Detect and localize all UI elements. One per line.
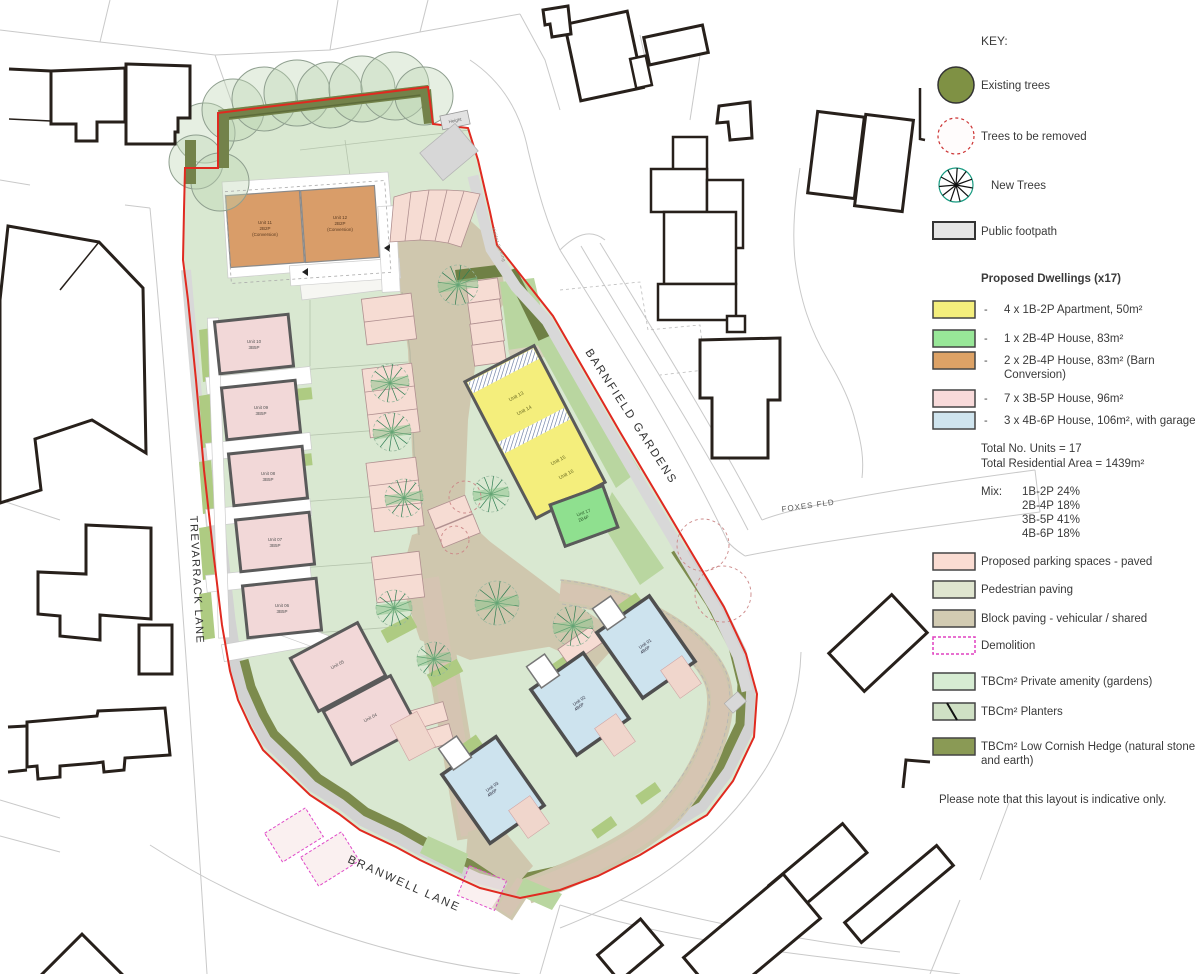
svg-text:TBCm² Private amenity (gardens: TBCm² Private amenity (gardens) <box>981 676 1152 688</box>
svg-text:Unit 07: Unit 07 <box>268 537 283 542</box>
svg-text:-: - <box>984 304 988 316</box>
svg-text:(Conversion): (Conversion) <box>252 232 278 237</box>
svg-text:2B2P: 2B2P <box>259 226 270 231</box>
svg-text:Unit 12: Unit 12 <box>333 215 348 220</box>
svg-text:4B-6P 18%: 4B-6P 18% <box>1022 528 1080 540</box>
svg-text:Please note that this layout i: Please note that this layout is indicati… <box>939 794 1166 806</box>
svg-text:Trees to be removed: Trees to be removed <box>981 131 1087 143</box>
svg-text:-: - <box>984 355 988 367</box>
svg-text:3 x 4B-6P House, 106m², with g: 3 x 4B-6P House, 106m², with garage <box>1004 415 1196 427</box>
svg-text:2B2P: 2B2P <box>334 221 345 226</box>
svg-text:Pedestrian paving: Pedestrian paving <box>981 584 1073 596</box>
svg-text:Unit 08: Unit 08 <box>261 471 276 476</box>
svg-text:3B5P: 3B5P <box>248 345 259 350</box>
svg-text:Proposed Dwellings (x17): Proposed Dwellings (x17) <box>981 273 1121 285</box>
svg-text:Block paving - vehicular / sha: Block paving - vehicular / shared <box>981 613 1147 625</box>
svg-text:Proposed parking spaces - pave: Proposed parking spaces - paved <box>981 556 1152 568</box>
svg-text:(Conversion): (Conversion) <box>327 227 353 232</box>
svg-text:3B5P: 3B5P <box>276 609 287 614</box>
svg-text:KEY:: KEY: <box>981 34 1008 48</box>
svg-text:New Trees: New Trees <box>991 180 1046 192</box>
svg-text:-: - <box>984 333 988 345</box>
svg-text:3B-5P 41%: 3B-5P 41% <box>1022 514 1080 526</box>
svg-text:2 x 2B-4P House, 83m² (Barn: 2 x 2B-4P House, 83m² (Barn <box>1004 355 1155 367</box>
svg-text:Total Residential Area = 1439m: Total Residential Area = 1439m² <box>981 458 1145 470</box>
svg-text:Unit 09: Unit 09 <box>254 405 269 410</box>
svg-text:Unit 06: Unit 06 <box>275 603 290 608</box>
svg-text:Conversion): Conversion) <box>1004 369 1066 381</box>
svg-text:TBCm² Planters: TBCm² Planters <box>981 706 1063 718</box>
svg-text:2B-4P 18%: 2B-4P 18% <box>1022 500 1080 512</box>
svg-text:Mix:: Mix: <box>981 486 1002 498</box>
svg-text:4 x 1B-2P Apartment, 50m²: 4 x 1B-2P Apartment, 50m² <box>1004 304 1143 316</box>
svg-text:Unit 11: Unit 11 <box>258 220 272 225</box>
svg-text:3B5P: 3B5P <box>262 477 273 482</box>
svg-text:Total No. Units = 17: Total No. Units = 17 <box>981 443 1082 455</box>
svg-text:Demolition: Demolition <box>981 640 1035 652</box>
svg-text:7 x 3B-5P House, 96m²: 7 x 3B-5P House, 96m² <box>1004 393 1123 405</box>
svg-text:TBCm² Low Cornish Hedge (natur: TBCm² Low Cornish Hedge (natural stone <box>981 741 1195 753</box>
svg-text:-: - <box>984 415 988 427</box>
svg-text:Existing trees: Existing trees <box>981 80 1050 92</box>
svg-text:3B5P: 3B5P <box>269 543 280 548</box>
svg-text:and earth): and earth) <box>981 755 1034 767</box>
svg-text:Public footpath: Public footpath <box>981 226 1057 238</box>
svg-text:1 x 2B-4P House, 83m²: 1 x 2B-4P House, 83m² <box>1004 333 1123 345</box>
svg-text:1B-2P 24%: 1B-2P 24% <box>1022 486 1080 498</box>
svg-text:Unit 10: Unit 10 <box>247 339 262 344</box>
svg-text:-: - <box>984 393 988 405</box>
svg-text:3B5P: 3B5P <box>255 411 266 416</box>
